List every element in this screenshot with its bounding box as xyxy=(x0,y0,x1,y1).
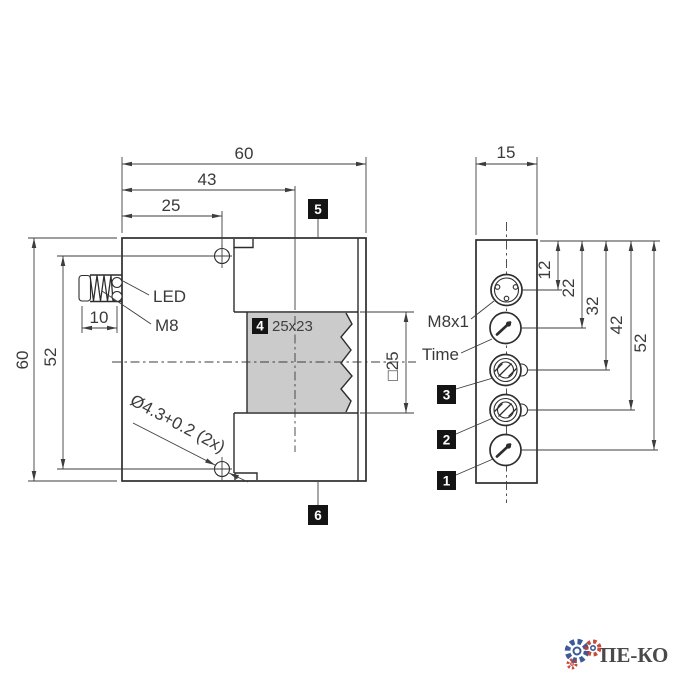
time-label: Time xyxy=(422,345,459,364)
badge-5: 5 xyxy=(308,199,328,237)
window-size-label: 25x23 xyxy=(272,318,313,335)
badge-4-number: 4 xyxy=(256,319,264,334)
m8-connector-side xyxy=(79,275,122,302)
badge-6-number: 6 xyxy=(314,508,322,523)
connector-pin xyxy=(495,285,500,290)
badge-4-window: 4 25x23 xyxy=(252,318,313,335)
badge-3-number: 3 xyxy=(443,388,451,403)
dim-text-43: 43 xyxy=(198,170,217,189)
m8-label: M8 xyxy=(155,316,179,335)
front-view: 60 43 25 60 52 10 xyxy=(13,144,416,525)
m8-connector-face xyxy=(491,275,522,306)
dim-text-25: 25 xyxy=(162,196,181,215)
dim-text-52-left: 52 xyxy=(41,348,60,367)
dim-text-10: 10 xyxy=(90,308,109,327)
dim-text-15: 15 xyxy=(497,143,516,162)
technical-drawing-page: 60 43 25 60 52 10 xyxy=(0,0,675,675)
watermark-text: ПЕ-КО xyxy=(600,643,668,667)
connector-cap xyxy=(79,276,91,302)
dim-text-52-side: 52 xyxy=(631,334,650,353)
potentiometer-1 xyxy=(490,435,521,466)
side-view: 15 12 22 32 42 52 M8x1 Ti xyxy=(422,143,660,503)
dim-text-60-left: 60 xyxy=(13,351,32,370)
dim-width-60: 60 xyxy=(122,144,366,233)
connector-pin xyxy=(513,285,518,290)
dim-window-25: □25 xyxy=(360,312,414,413)
dim-text-12: 12 xyxy=(535,261,554,280)
badge-6: 6 xyxy=(308,482,328,525)
badge-5-number: 5 xyxy=(314,202,322,217)
dim-width-43: 43 xyxy=(122,170,295,190)
sensor-dimension-drawing: 60 43 25 60 52 10 xyxy=(0,0,675,675)
dim-text-60-top: 60 xyxy=(235,144,254,163)
led-indicator-top xyxy=(112,278,122,288)
dim-positions: 12 22 32 42 52 xyxy=(521,241,660,450)
badge-1-number: 1 xyxy=(443,474,451,489)
watermark: ПЕ-КО xyxy=(568,642,669,669)
led-label: LED xyxy=(153,287,186,306)
dim-text-square-25: □25 xyxy=(383,351,402,380)
dim-connector-10: 10 xyxy=(82,306,117,333)
m8x1-label: M8x1 xyxy=(427,312,469,331)
connector-thread xyxy=(90,276,113,302)
dim-text-22: 22 xyxy=(559,279,578,298)
dim-depth-15: 15 xyxy=(476,143,537,235)
dim-text-42: 42 xyxy=(607,316,626,335)
time-potentiometer xyxy=(490,313,521,344)
badge-2-number: 2 xyxy=(443,433,451,448)
led-indicator-bottom xyxy=(112,292,122,302)
dim-text-32: 32 xyxy=(583,297,602,316)
gears-logo-icon xyxy=(568,642,600,669)
connector-pin xyxy=(504,296,509,301)
